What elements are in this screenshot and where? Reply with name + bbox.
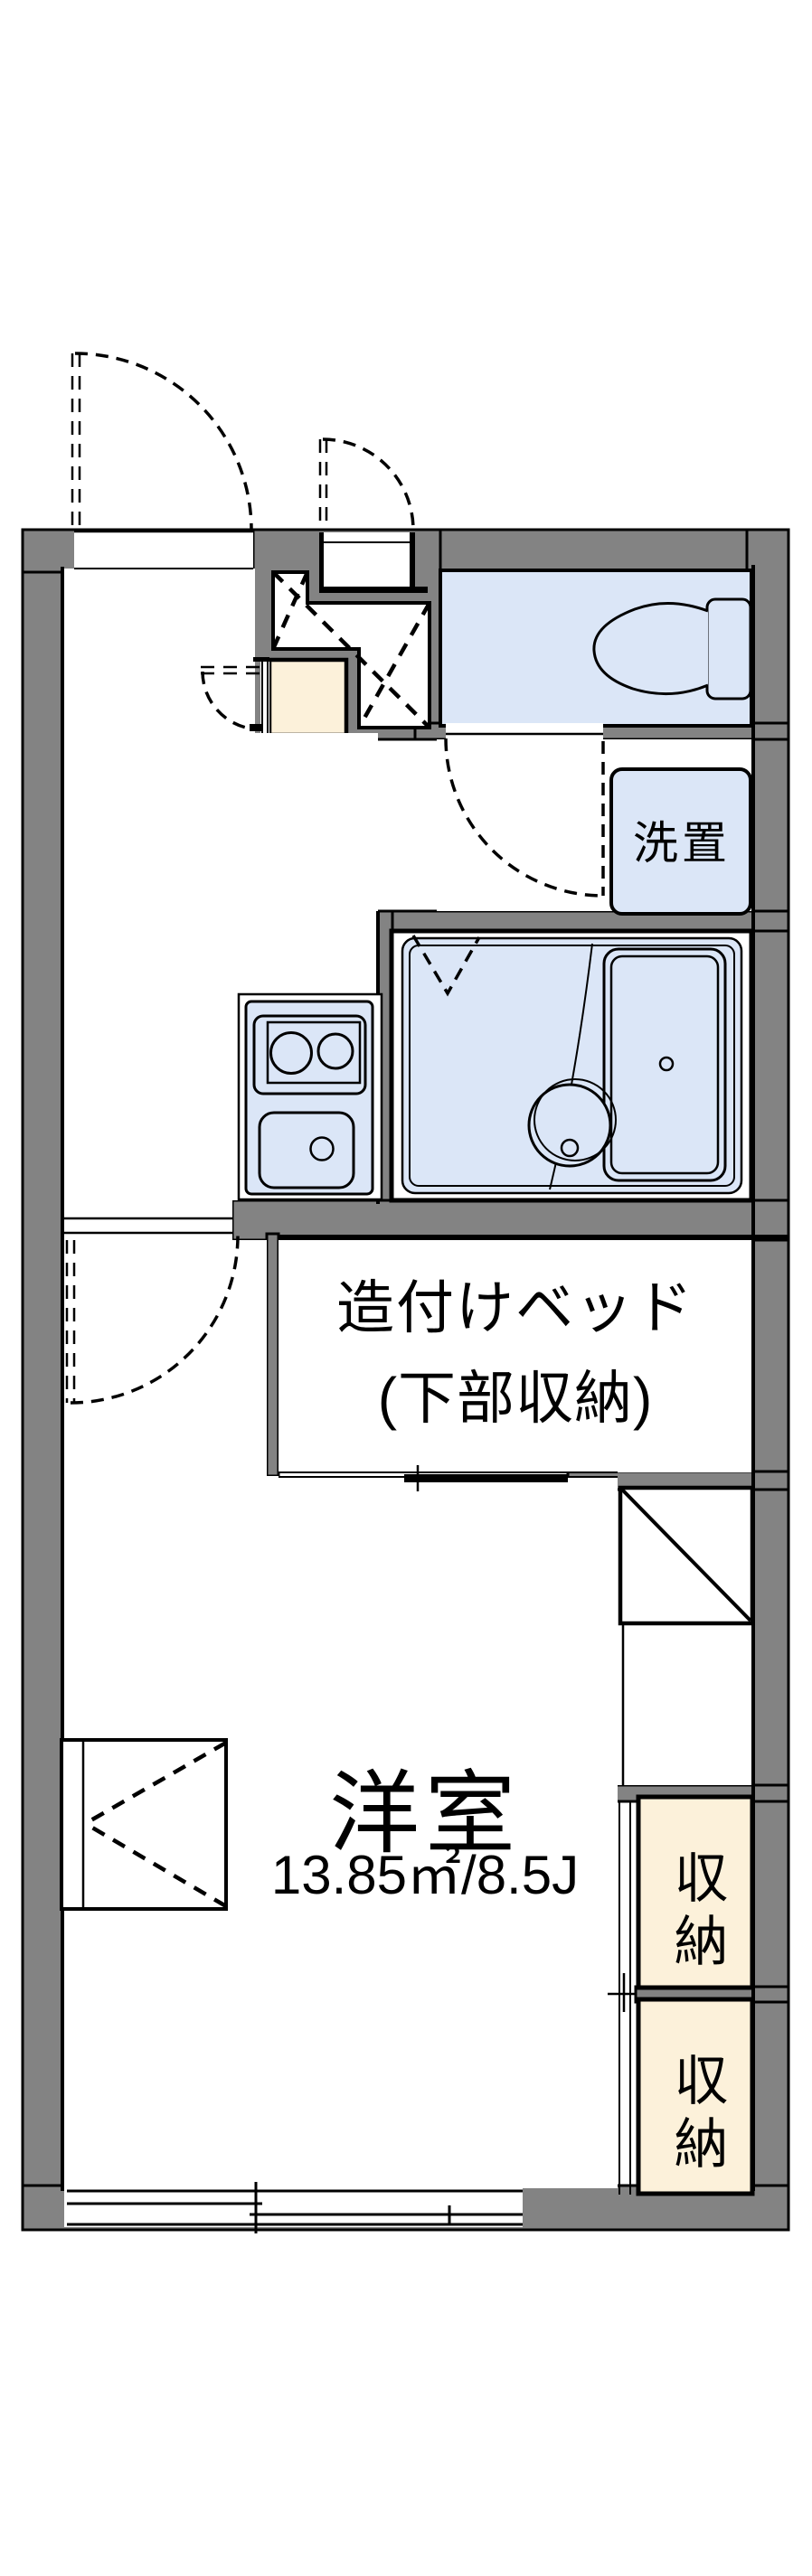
kitchen-counter [239,994,382,1199]
western-room-floor [64,1200,232,2188]
entrance-door-swing-icon [72,353,251,530]
floorplan-canvas: 洗置 造付けベッド (下部収納) 洋室 13.85㎡/8.5J 収納 収納 [0,0,812,2576]
service-door-swing-icon [320,439,413,530]
sliding-window-icon [64,2182,523,2233]
built-in-bed-label: 造付けベッド [279,1276,752,1340]
washer-place-label: 洗置 [611,819,752,869]
shoe-cabinet-icon [269,660,346,735]
entrance-hall-floor [61,569,255,733]
entrance-door-opening [74,532,253,569]
service-door-niche [323,532,410,589]
built-in-bed-sublabel: (下部収納) [279,1367,752,1430]
storage-upper-label: 収納 [666,1831,726,1994]
storage-lower-label: 収納 [666,2034,726,2196]
desk-nook-floor [618,1623,752,1785]
bathtub-icon [604,949,725,1180]
western-room-size: 13.85㎡/8.5J [163,1846,687,1905]
bathroom [392,931,751,1200]
